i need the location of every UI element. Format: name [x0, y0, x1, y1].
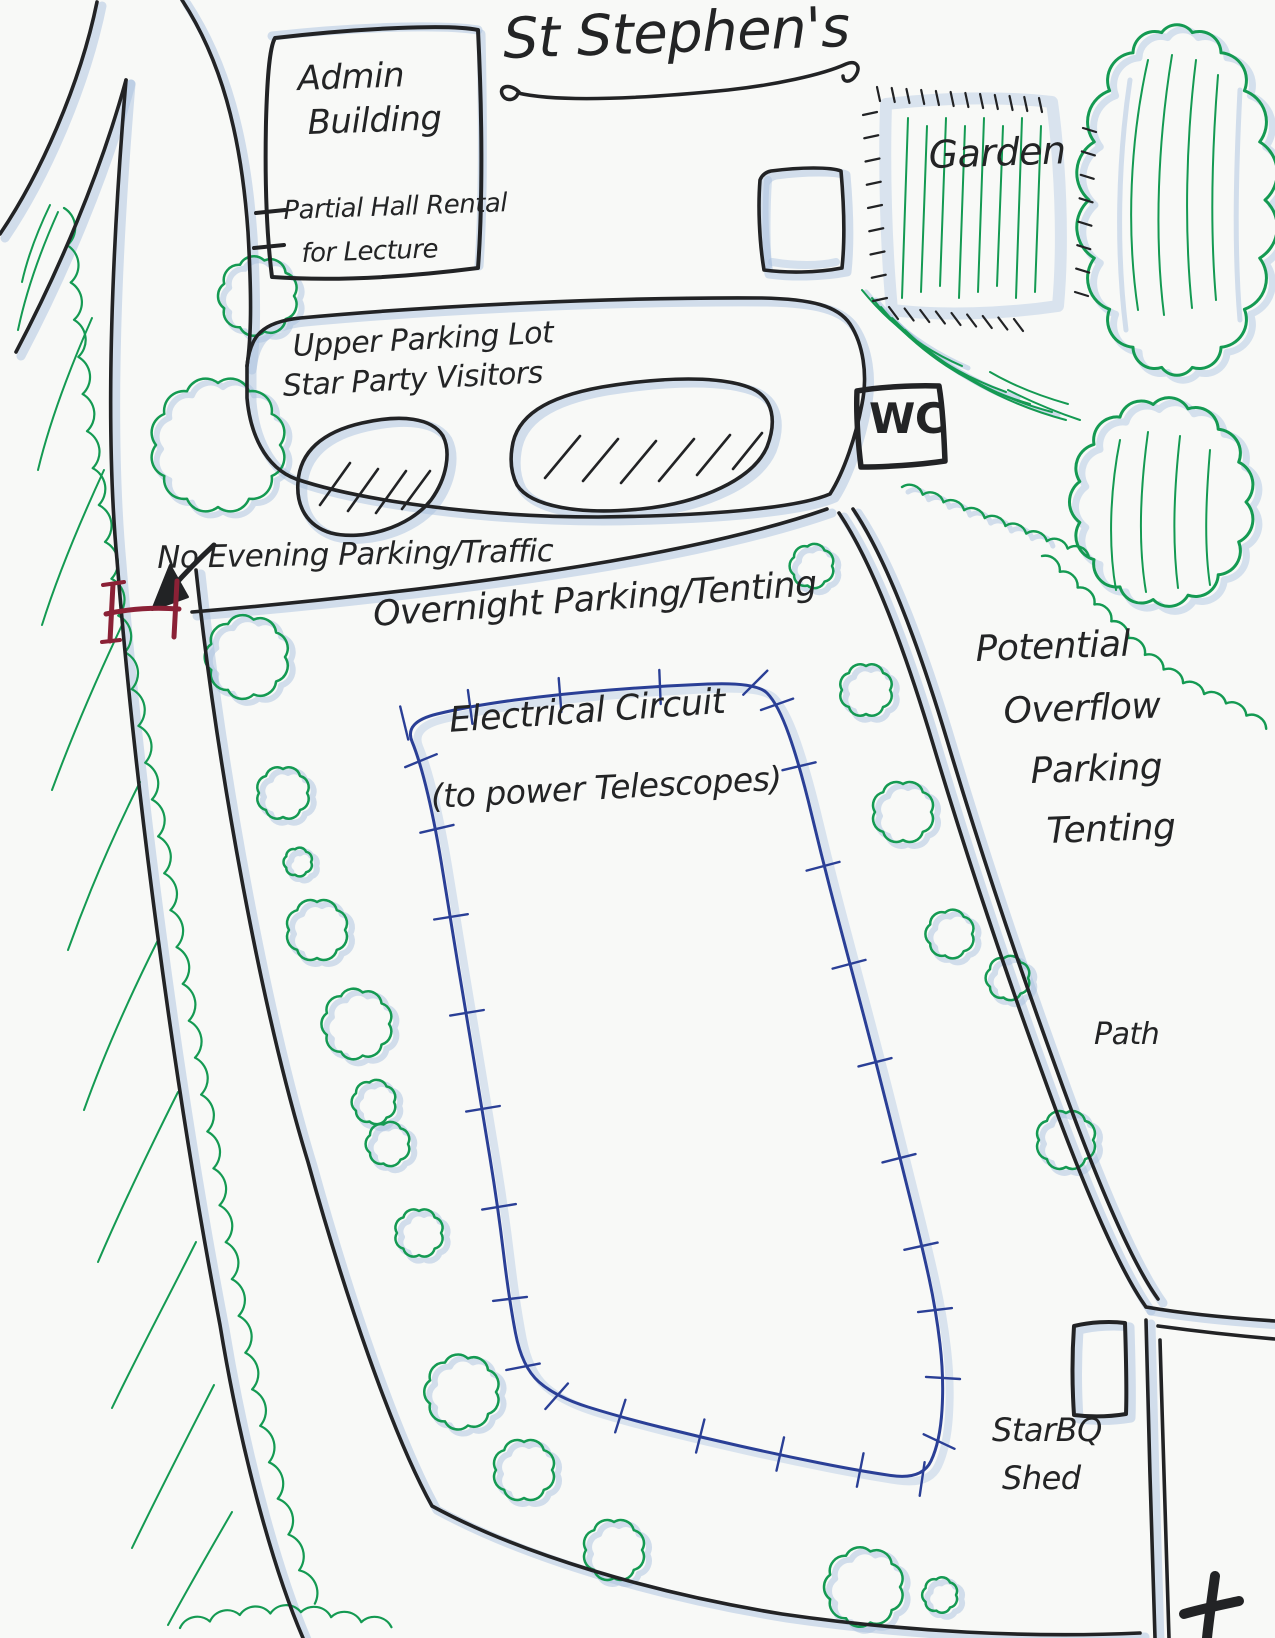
admin-building-note-line2: for Lecture [301, 236, 438, 267]
wc-label: WC [869, 398, 945, 440]
starbq-shed-label-line2: Shed [1002, 1462, 1081, 1494]
path-label: Path [1094, 1020, 1159, 1050]
overflow-label-line4: Tenting [1046, 810, 1176, 850]
admin-building-label-line1: Admin [297, 58, 405, 96]
admin-building-note-line1: Partial Hall Rental [283, 190, 508, 224]
overflow-label-line1: Potential [975, 627, 1131, 668]
site-map: St Stephen's Admin Building Partial Hall… [0, 0, 1275, 1638]
overflow-label-line3: Parking [1030, 749, 1163, 790]
garden-label: Garden [928, 131, 1066, 174]
no-evening-parking-label: No Evening Parking/Traffic [157, 536, 553, 574]
starbq-shed-label-line1: StarBQ [992, 1414, 1102, 1446]
map-title: St Stephen's [502, 0, 851, 68]
admin-building-label-line2: Building [307, 101, 442, 140]
overflow-label-line2: Overflow [1003, 689, 1161, 730]
